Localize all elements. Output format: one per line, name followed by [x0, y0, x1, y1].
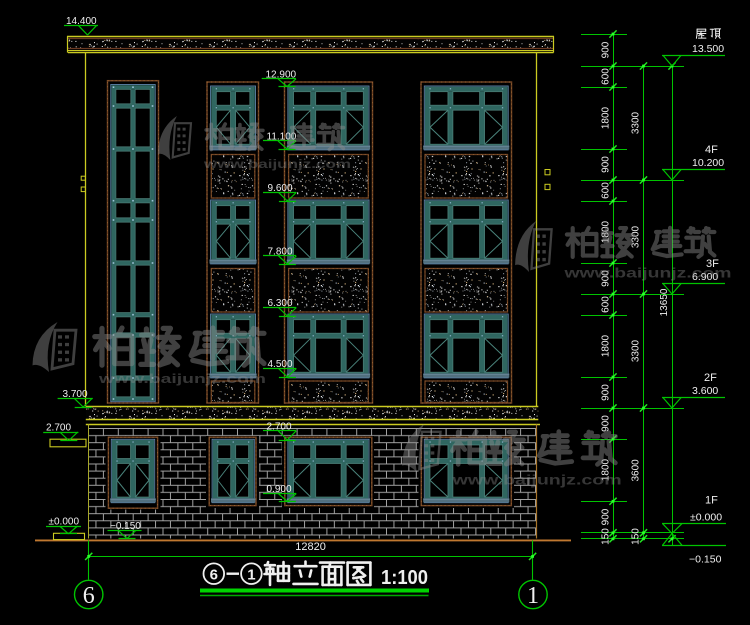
svg-text:13650: 13650 — [659, 288, 670, 316]
svg-text:4F: 4F — [705, 144, 718, 156]
svg-text:3.600: 3.600 — [692, 385, 718, 397]
svg-text:6: 6 — [83, 583, 95, 609]
svg-text:1:100: 1:100 — [381, 566, 428, 589]
svg-text:6: 6 — [210, 567, 218, 584]
svg-text:1: 1 — [527, 583, 539, 609]
svg-text:150: 150 — [601, 528, 612, 545]
svg-text:150: 150 — [631, 528, 642, 545]
svg-text:3600: 3600 — [631, 459, 642, 482]
svg-text:1800: 1800 — [601, 334, 612, 357]
svg-text:600: 600 — [601, 68, 612, 85]
svg-text:900: 900 — [601, 41, 612, 58]
svg-text:3300: 3300 — [631, 111, 642, 134]
svg-text:2F: 2F — [704, 372, 717, 384]
svg-text:900: 900 — [601, 415, 612, 432]
svg-text:±0.000: ±0.000 — [690, 511, 722, 523]
svg-text:12820: 12820 — [295, 541, 326, 553]
svg-text:−0.150: −0.150 — [689, 554, 722, 566]
svg-text:600: 600 — [601, 182, 612, 199]
svg-text:3300: 3300 — [631, 339, 642, 362]
svg-text:www.baijunjz.com: www.baijunjz.com — [563, 266, 732, 281]
svg-text:13.500: 13.500 — [692, 43, 724, 55]
svg-text:www.baijunjz.com: www.baijunjz.com — [203, 157, 351, 171]
svg-text:600: 600 — [601, 296, 612, 313]
svg-text:900: 900 — [601, 508, 612, 525]
svg-text:www.baijunjz.com: www.baijunjz.com — [97, 371, 266, 386]
svg-text:10.200: 10.200 — [692, 157, 724, 169]
svg-text:1800: 1800 — [601, 106, 612, 129]
svg-text:900: 900 — [601, 384, 612, 401]
svg-text:www.baijunjz.com: www.baijunjz.com — [451, 472, 621, 488]
svg-text:1F: 1F — [705, 495, 718, 507]
svg-text:900: 900 — [601, 156, 612, 173]
svg-text:1: 1 — [247, 567, 255, 584]
